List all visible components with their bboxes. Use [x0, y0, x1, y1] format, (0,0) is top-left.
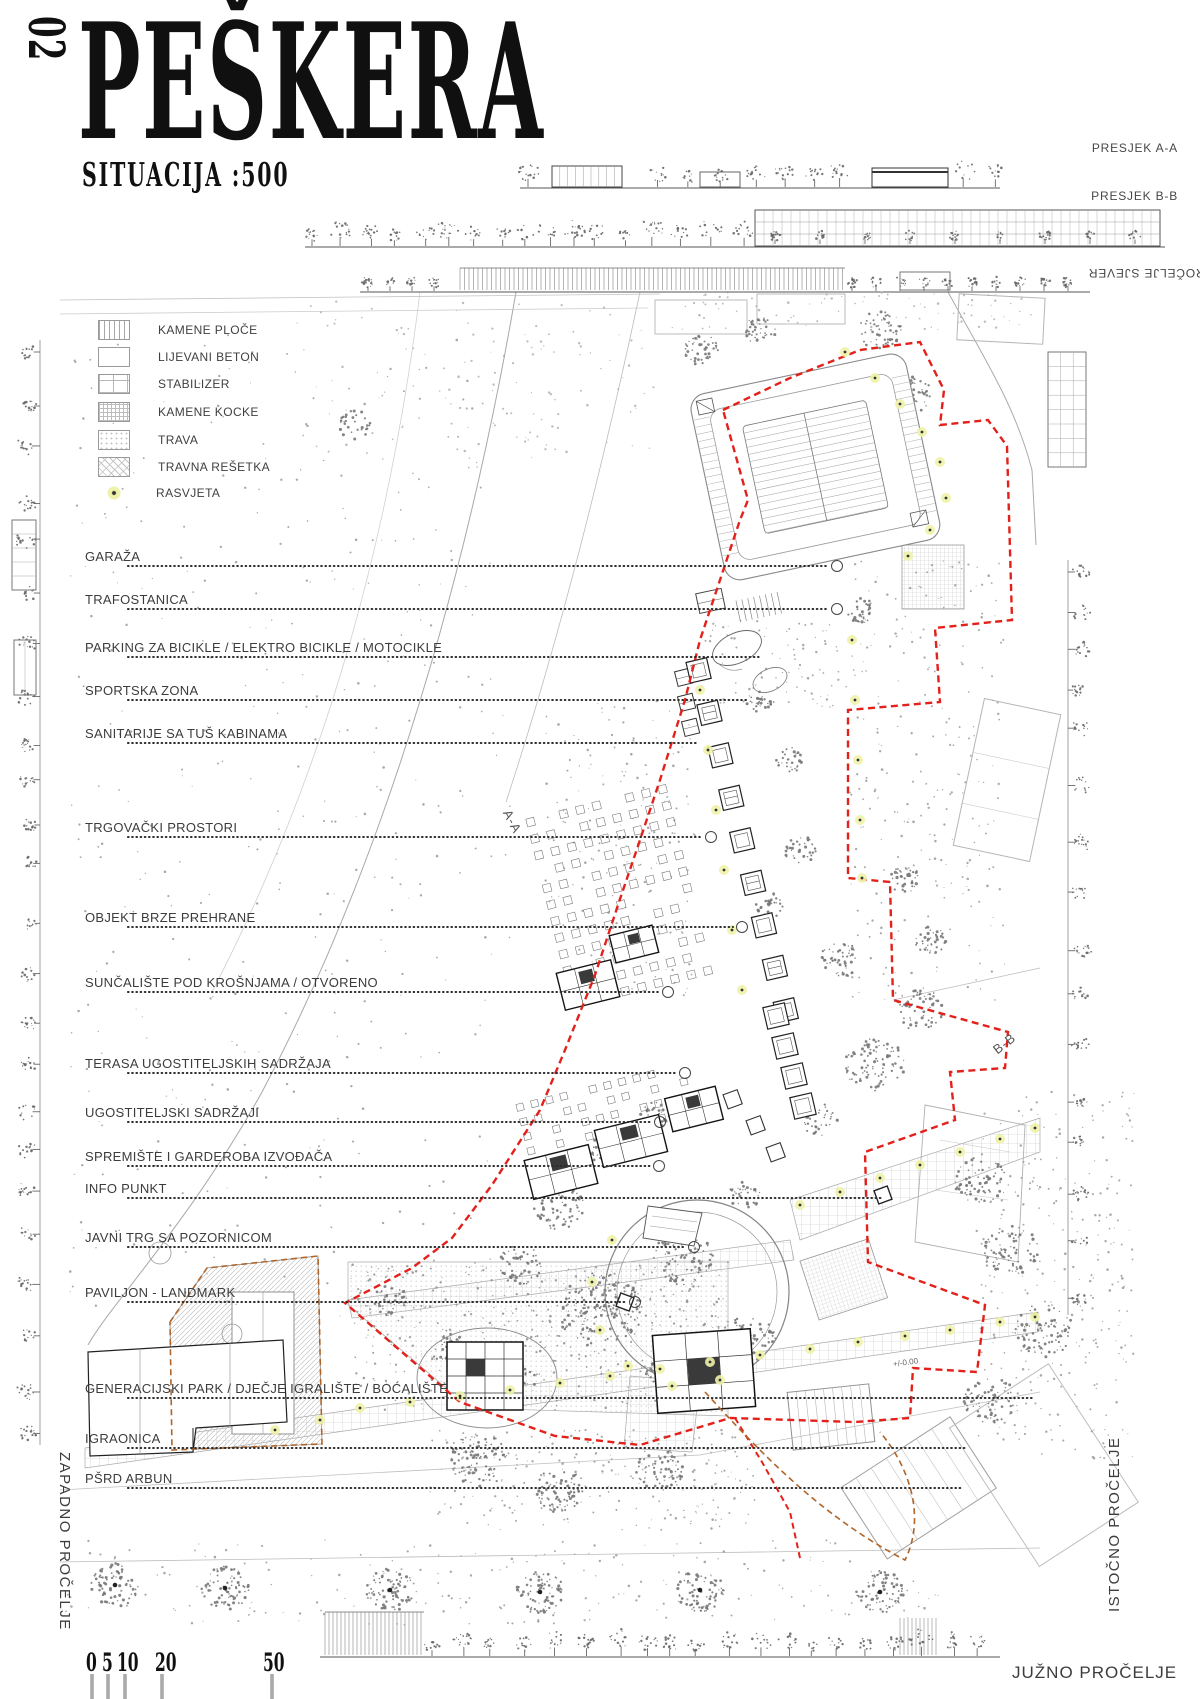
section-label-aa: PRESJEK A-A — [1078, 141, 1178, 155]
legend-item: RASVJETA — [98, 484, 220, 502]
plan-label-paviljon: PAVILJON - LANDMARK — [85, 1285, 235, 1300]
scale-value: 20 — [155, 1648, 177, 1677]
sheet-subtitle: SITUACIJA :500 — [82, 155, 289, 194]
facade-label-west: ZAPADNO PROČELJE — [56, 1452, 73, 1631]
legend-item: LIJEVANI BETON — [98, 347, 259, 367]
facade-label-east: ISTOČNO PROČELJE — [1106, 1437, 1123, 1612]
plan-label-brza-prehrana: OBJEKT BRZE PREHRANE — [85, 910, 255, 925]
legend-item: TRAVA — [98, 430, 198, 450]
plan-label-suncaliste: SUNČALIŠTE POD KROŠNJAMA / OTVORENO — [85, 975, 378, 990]
sheet-title: PEŠKERA — [78, 2, 544, 162]
plan-label-ugostiteljski: UGOSTITELJSKI SADRŽAJI — [85, 1105, 259, 1120]
swatch-kamene-kocke-icon — [98, 402, 130, 422]
plan-label-spremiste: SPREMIŠTE I GARDEROBA IZVOĐAČA — [85, 1149, 332, 1164]
scale-value: 50 — [263, 1648, 285, 1677]
legend-item: KAMENE PLOČE — [98, 320, 258, 340]
architectural-sheet: { "title_block": { "number": "02", "titl… — [0, 0, 1200, 1699]
site-plan-drawing — [0, 0, 1200, 1699]
plan-label-psrd-arbun: PŠRD ARBUN — [85, 1471, 173, 1486]
facade-label-north: PROČELJE SJEVER — [1088, 266, 1200, 280]
swatch-trava-icon — [98, 430, 130, 450]
swatch-stabilizer-icon — [98, 374, 130, 394]
plan-label-parking: PARKING ZA BICIKLE / ELEKTRO BICIKLE / M… — [85, 640, 442, 655]
plan-label-sportska-zona: SPORTSKA ZONA — [85, 683, 198, 698]
facade-label-south: JUŽNO PROČELJE — [1012, 1663, 1177, 1683]
plan-label-trafostanica: TRAFOSTANICA — [85, 592, 188, 607]
plan-label-javni-trg: JAVNI TRG SA POZORNICOM — [85, 1230, 272, 1245]
plan-label-igraonica: IGRAONICA — [85, 1431, 161, 1446]
swatch-travna-resetka-icon — [98, 457, 130, 477]
legend-item: KAMENE KOCKE — [98, 402, 259, 422]
plan-label-info-punkt: INFO PUNKT — [85, 1181, 167, 1196]
scale-value: 0 — [86, 1648, 97, 1677]
plan-label-generacijski: GENERACIJSKI PARK / DJEČJE IGRALIŠTE / B… — [85, 1381, 448, 1396]
scale-value: 5 — [102, 1648, 113, 1677]
plan-label-sanitarije: SANITARIJE SA TUŠ KABINAMA — [85, 726, 287, 741]
swatch-rasvjeta-icon — [105, 484, 123, 502]
legend-item: TRAVNA REŠETKA — [98, 457, 270, 477]
swatch-kamene-ploce-icon — [98, 320, 130, 340]
swatch-lijevani-beton-icon — [98, 347, 130, 367]
surface-textures — [85, 545, 1040, 1468]
plan-label-terasa: TERASA UGOSTITELJSKIH SADRŽAJA — [85, 1056, 331, 1071]
section-label-bb: PRESJEK B-B — [1078, 189, 1178, 203]
scale-value: 10 — [117, 1648, 139, 1677]
plan-label-garaza: GARAŽA — [85, 549, 140, 564]
legend-item: STABILIZER — [98, 374, 230, 394]
plan-label-trgovacki: TRGOVAČKI PROSTORI — [85, 820, 237, 835]
sheet-number: 02 — [17, 16, 76, 62]
